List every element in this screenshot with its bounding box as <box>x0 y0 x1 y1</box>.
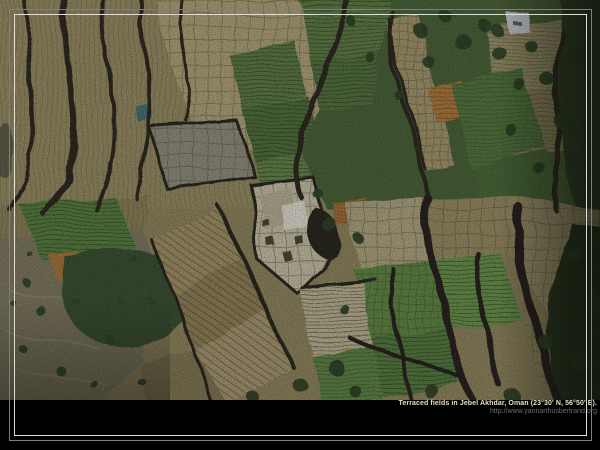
aerial-photo-terraced-fields <box>0 0 600 400</box>
caption-url: http://www.yannarthusbertrand.org <box>399 408 597 415</box>
photo-caption: Terraced fields in Jebel Akhdar, Oman (2… <box>399 400 597 415</box>
wallpaper: Terraced fields in Jebel Akhdar, Oman (2… <box>0 0 600 450</box>
caption-title: Terraced fields in Jebel Akhdar, Oman (2… <box>399 400 597 408</box>
terraced-fields-scene <box>0 0 600 400</box>
